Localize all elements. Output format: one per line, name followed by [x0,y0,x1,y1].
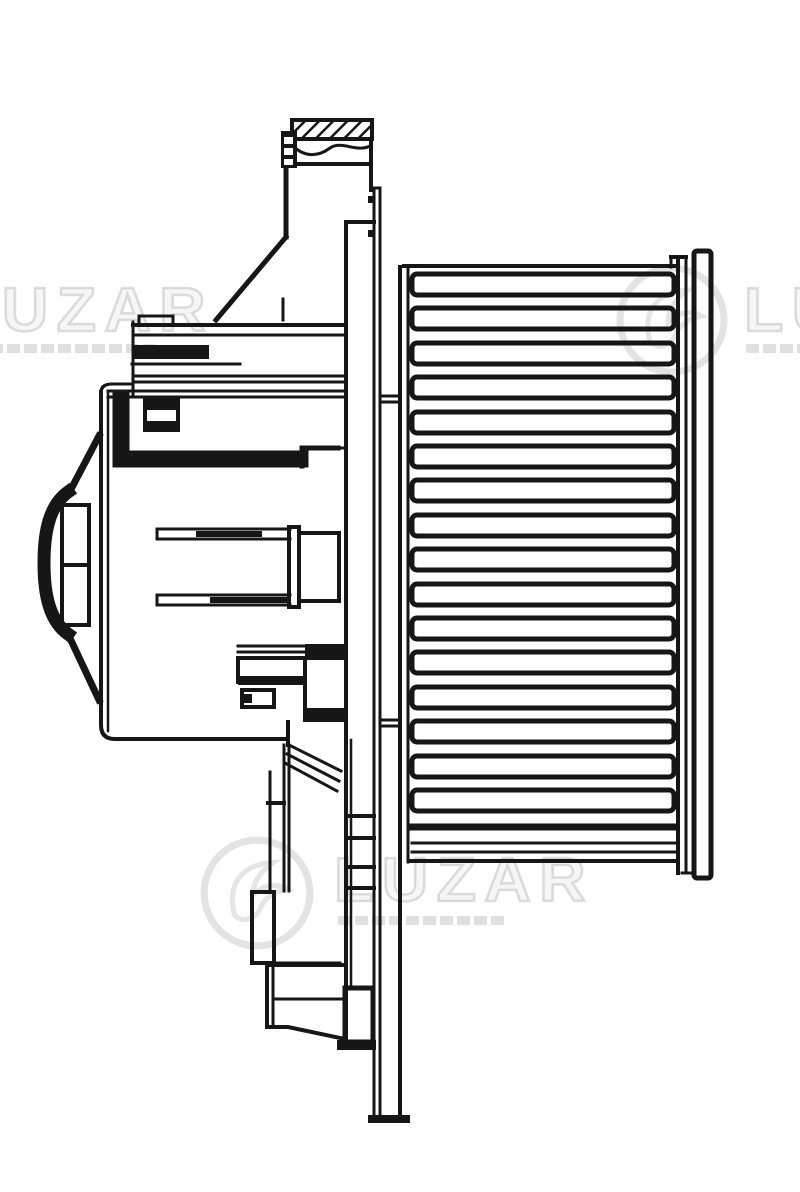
mounting-bracket [252,745,376,1050]
fan-cage [400,251,711,1117]
motor-housing [101,316,346,739]
mounting-plate [346,188,406,1119]
fan-blades [412,274,674,811]
drawing-canvas: LUZAR LUZAR LUZAR [0,0,800,1192]
fan-end-disc [694,251,711,878]
shaft-hub [238,644,348,791]
electrical-connector [44,436,99,700]
blower-motor-technical-drawing [0,0,800,1192]
